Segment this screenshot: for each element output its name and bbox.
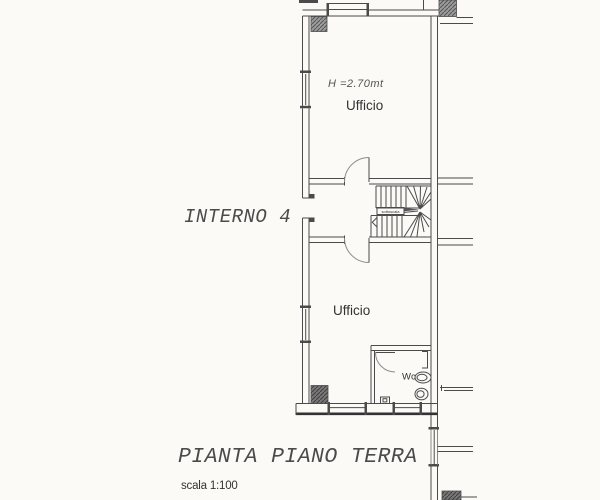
- boiler-box: [381, 397, 390, 404]
- wc-label: Wc: [402, 372, 416, 383]
- window-left-lower: [300, 306, 311, 344]
- unit-number-label: INTERNO 4: [184, 206, 291, 228]
- hallway-top-wall: [309, 177, 431, 186]
- left-wall: [300, 16, 315, 404]
- entrance-door-jambs: [309, 194, 315, 222]
- bottom-wall: [296, 402, 438, 415]
- floor-plan-drawing: H =2.70mt Ufficio INTERNO 4 Ufficio Wc s…: [0, 0, 600, 500]
- plan-scale-label: scala 1:100: [181, 480, 238, 492]
- pillar-top-right: [439, 0, 457, 17]
- sink: [415, 372, 431, 383]
- adjacent-unit-lines: [438, 18, 478, 498]
- plan-title: PIANTA PIANO TERRA: [178, 445, 417, 469]
- door-wc: [376, 353, 396, 373]
- window-left-upper: [300, 71, 311, 109]
- right-wall: [429, 16, 440, 500]
- stair-start-arrow: [372, 218, 377, 228]
- pillar-top-left: [311, 17, 327, 32]
- door-office-bottom: [345, 238, 370, 263]
- window-right-lower: [429, 427, 440, 467]
- pillars: [311, 0, 461, 500]
- shower-bracket: [422, 352, 428, 369]
- pillar-bottom-left: [311, 386, 328, 404]
- staircase: [371, 186, 431, 237]
- window-top: [327, 3, 370, 16]
- toilet: [415, 388, 428, 400]
- office-top-label: Ufficio: [346, 98, 383, 113]
- door-office-top: [345, 158, 370, 183]
- top-wall: [299, 0, 439, 16]
- scanned-floor-plan-page: H =2.70mt Ufficio INTERNO 4 Ufficio Wc s…: [0, 0, 600, 500]
- understair-label: sottoscala: [381, 209, 400, 214]
- ceiling-height-label: H =2.70mt: [328, 78, 384, 90]
- office-bottom-label: Ufficio: [333, 303, 370, 318]
- upper-wall-stub: [299, 0, 318, 3]
- pillar-bottom-right: [442, 491, 461, 500]
